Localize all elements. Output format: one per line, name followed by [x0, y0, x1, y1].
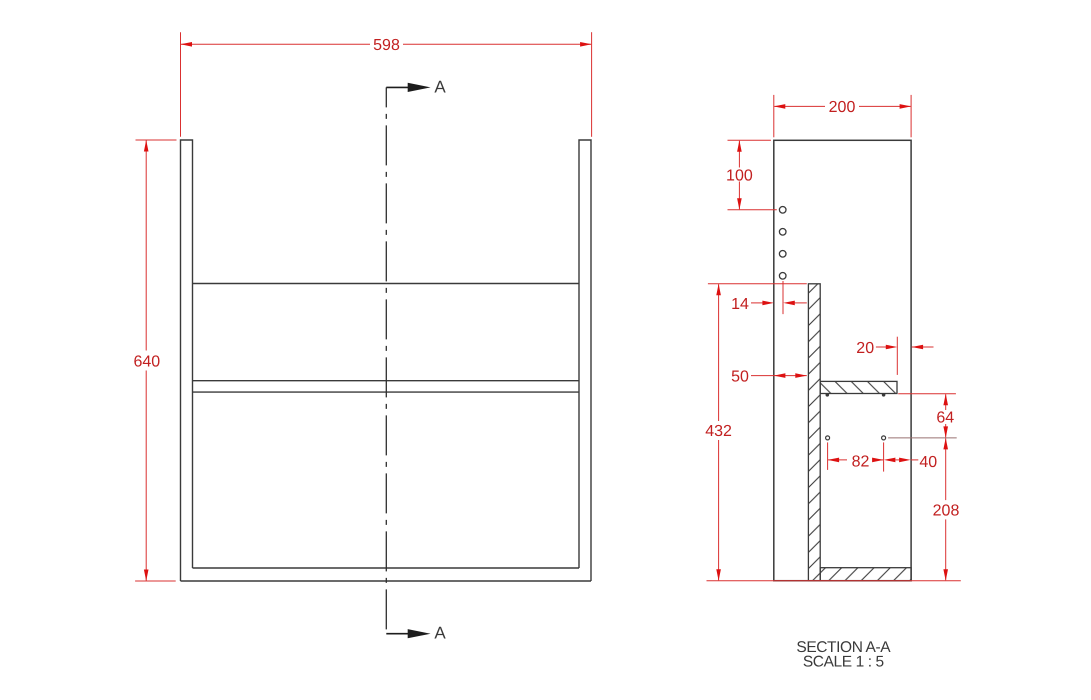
svg-text:40: 40 — [919, 454, 937, 471]
svg-text:A: A — [434, 78, 446, 97]
svg-text:20: 20 — [856, 340, 874, 357]
svg-text:200: 200 — [829, 99, 856, 116]
svg-text:432: 432 — [705, 423, 732, 440]
svg-text:598: 598 — [373, 37, 400, 54]
svg-text:50: 50 — [731, 369, 749, 386]
svg-text:640: 640 — [133, 354, 160, 371]
svg-text:SCALE 1 : 5: SCALE 1 : 5 — [803, 653, 884, 670]
svg-text:82: 82 — [852, 453, 870, 470]
svg-text:A: A — [434, 624, 446, 643]
svg-text:100: 100 — [726, 167, 753, 184]
svg-text:208: 208 — [933, 502, 960, 519]
svg-text:64: 64 — [936, 410, 954, 427]
svg-text:14: 14 — [731, 296, 749, 313]
